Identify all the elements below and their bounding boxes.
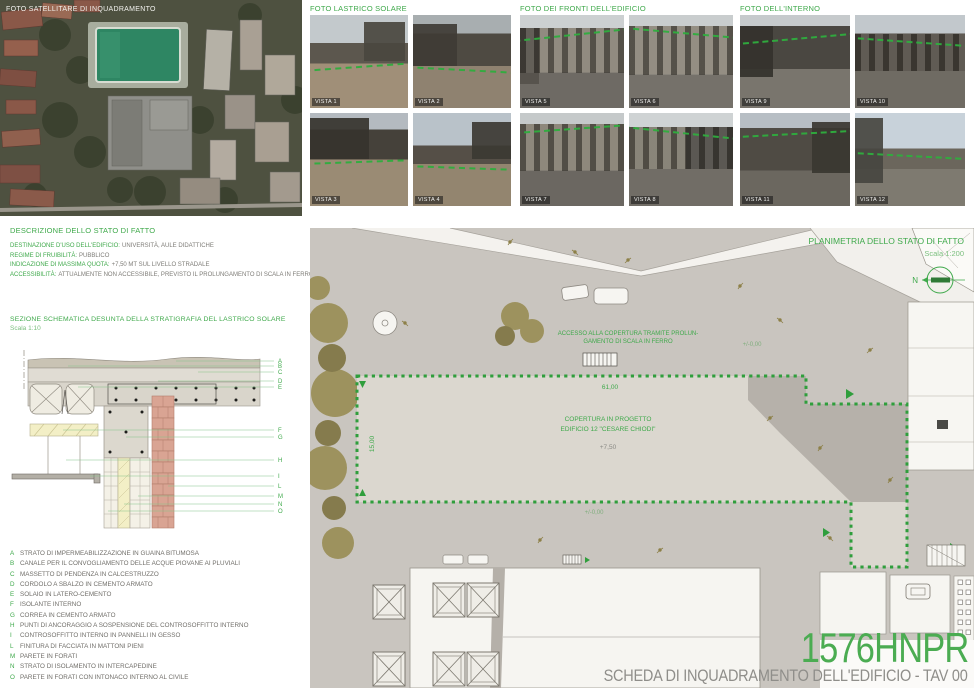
roof-elevation: +7,50 xyxy=(600,444,617,451)
title-block: 1576HNPR SCHEDA DI INQUADRAMENTO DELL'ED… xyxy=(554,628,968,686)
row-value: PUBBLICO xyxy=(79,253,109,259)
svg-text:C: C xyxy=(278,370,283,376)
photo-vista-label: VISTA 12 xyxy=(857,196,888,204)
photo-vista-label: VISTA 10 xyxy=(857,98,888,106)
photo-vista-label: VISTA 8 xyxy=(631,196,659,204)
description-rows: DESTINAZIONE D'USO DELL'EDIFICIO:UNIVERS… xyxy=(10,242,302,280)
photo-thumbnail: VISTA 7 xyxy=(520,113,624,206)
photo-group-title: FOTO DELL'INTERNO xyxy=(740,2,966,15)
legend-text: CONTROSOFFITTO INTERNO IN PANNELLI IN GE… xyxy=(20,632,180,639)
legend-item: DCORDOLO A SBALZO IN CEMENTO ARMATO xyxy=(10,580,310,590)
section-scale: Scala 1:10 xyxy=(10,325,302,332)
roof-outline-overlay xyxy=(413,66,511,74)
row-label: INDICAZIONE DI MASSIMA QUOTA: xyxy=(10,262,110,268)
section-letter-labels: AB CD EF GH IL MN O xyxy=(278,359,283,515)
photo-vista-label: VISTA 11 xyxy=(742,196,773,204)
photo-grid: VISTA 1VISTA 2VISTA 3VISTA 4 xyxy=(310,15,512,206)
row-value: +7,50 MT SUL LIVELLO STRADALE xyxy=(112,262,210,268)
plan-title: PLANIMETRIA DELLO STATO DI FATTO xyxy=(808,236,964,246)
roof-label-line2: EDIFICIO 12 "CESARE CHIODI" xyxy=(561,426,657,433)
svg-text:N: N xyxy=(278,502,282,508)
svg-text:I: I xyxy=(278,474,280,480)
legend-letter: E xyxy=(10,590,20,600)
legend-item: OPARETE IN FORATI CON INTONACO INTERNO A… xyxy=(10,673,310,683)
legend-text: CORREA IN CEMENTO ARMATO xyxy=(20,612,116,619)
photo-thumbnail: VISTA 4 xyxy=(413,113,511,206)
legend-text: FINITURA DI FACCIATA IN MATTONI PIENI xyxy=(20,643,144,650)
photo-group-interno: FOTO DELL'INTERNOVISTA 9VISTA 10VISTA 11… xyxy=(740,2,966,206)
hollow-core-blocks xyxy=(30,384,94,414)
site-plan: N PLANIMETRIA DELLO STATO DI FATTO Scala… xyxy=(310,228,974,688)
photo-building-mass xyxy=(413,24,457,66)
svg-text:E: E xyxy=(278,385,282,391)
suspended-ceiling xyxy=(12,474,100,483)
section-header: SEZIONE SCHEMATICA DESUNTA DELLA STRATIG… xyxy=(10,316,302,332)
legend-item: ICONTROSOFFITTO INTERNO IN PANNELLI IN G… xyxy=(10,631,310,641)
photo-vista-label: VISTA 7 xyxy=(522,196,550,204)
north-label: N xyxy=(912,276,918,285)
photo-thumbnail: VISTA 6 xyxy=(629,15,733,108)
legend-letter: H xyxy=(10,621,20,631)
stratigraphy-legend: ASTRATO DI IMPERMEABILIZZAZIONE IN GUAIN… xyxy=(10,549,310,683)
street-level-label: +/-0,00 xyxy=(585,510,605,516)
photo-vista-label: VISTA 6 xyxy=(631,98,659,106)
description-row: ACCESSIBILITÀ:ATTUALMENTE NON ACCESSIBIL… xyxy=(10,271,302,281)
svg-text:H: H xyxy=(278,458,282,464)
legend-text: PUNTI DI ANCORAGGIO A SOSPENSIONE DEL CO… xyxy=(20,622,248,629)
description-title: DESCRIZIONE DELLO STATO DI FATTO xyxy=(10,226,302,235)
skylight xyxy=(467,583,499,617)
inner-wall-layers xyxy=(104,458,150,528)
photo-thumbnail: VISTA 3 xyxy=(310,113,408,206)
legend-item: MPARETE IN FORATI xyxy=(10,652,310,662)
photo-thumbnail: VISTA 5 xyxy=(520,15,624,108)
legend-text: CANALE PER IL CONVOGLIAMENTO DELLE ACQUE… xyxy=(20,560,240,567)
photo-vista-label: VISTA 9 xyxy=(742,98,770,106)
legend-letter: D xyxy=(10,580,20,590)
sheet-subtitle: SCHEDA DI INQUADRAMENTO DELL'EDIFICIO - … xyxy=(604,668,968,685)
skylight xyxy=(467,652,499,686)
stratigraphy-section-drawing: AB CD EF GH IL MN O xyxy=(8,350,300,550)
photo-vista-label: VISTA 5 xyxy=(522,98,550,106)
legend-item: ESOLAIO IN LATERO-CEMENTO xyxy=(10,590,310,600)
waterproofing-layer xyxy=(28,357,260,368)
legend-letter: A xyxy=(10,549,20,559)
svg-text:L: L xyxy=(278,484,282,490)
photo-building-mass xyxy=(310,118,369,160)
photo-vista-label: VISTA 4 xyxy=(415,196,443,204)
photo-thumbnail: VISTA 10 xyxy=(855,15,965,108)
slab-band xyxy=(28,382,260,406)
photo-thumbnail: VISTA 11 xyxy=(740,113,850,206)
legend-text: PARETE IN FORATI xyxy=(20,653,77,660)
svg-text:G: G xyxy=(278,435,283,441)
street-level-label: +/-0,00 xyxy=(743,342,763,348)
photo-group-lastrico: FOTO LASTRICO SOLAREVISTA 1VISTA 2VISTA … xyxy=(310,2,512,206)
photo-thumbnail: VISTA 8 xyxy=(629,113,733,206)
sheet-code: 1576HNPR xyxy=(800,628,968,668)
legend-letter: B xyxy=(10,559,20,569)
photo-grid: VISTA 5VISTA 6VISTA 7VISTA 8 xyxy=(520,15,734,206)
photo-vista-label: VISTA 3 xyxy=(312,196,340,204)
photo-grid: VISTA 9VISTA 10VISTA 11VISTA 12 xyxy=(740,15,966,206)
legend-letter: L xyxy=(10,642,20,652)
photo-group-title: FOTO DEI FRONTI DELL'EDIFICIO xyxy=(520,2,734,15)
legend-text: STRATO DI ISOLAMENTO IN INTERCAPEDINE xyxy=(20,663,157,670)
screed-layer xyxy=(28,368,260,382)
description-row: DESTINAZIONE D'USO DELL'EDIFICIO:UNIVERS… xyxy=(10,242,302,252)
skylight xyxy=(373,585,405,619)
legend-item: NSTRATO DI ISOLAMENTO IN INTERCAPEDINE xyxy=(10,662,310,672)
row-value: UNIVERSITÀ, AULE DIDATTICHE xyxy=(122,243,214,249)
photo-vista-label: VISTA 1 xyxy=(312,98,340,106)
stair-plan xyxy=(927,545,965,566)
legend-letter: G xyxy=(10,611,20,621)
swimming-pool xyxy=(88,22,188,88)
section-title: SEZIONE SCHEMATICA DESUNTA DELLA STRATIG… xyxy=(10,316,302,323)
legend-text: STRATO DI IMPERMEABILIZZAZIONE IN GUAINA… xyxy=(20,550,199,557)
svg-text:O: O xyxy=(278,509,283,515)
legend-item: ASTRATO DI IMPERMEABILIZZAZIONE IN GUAIN… xyxy=(10,549,310,559)
legend-text: CORDOLO A SBALZO IN CEMENTO ARMATO xyxy=(20,581,153,588)
legend-letter: C xyxy=(10,570,20,580)
legend-item: GCORREA IN CEMENTO ARMATO xyxy=(10,611,310,621)
fountain xyxy=(373,311,397,335)
row-value: ATTUALMENTE NON ACCESSIBILE, PREVISTO IL… xyxy=(58,272,348,278)
row-label: DESTINAZIONE D'USO DELL'EDIFICIO: xyxy=(10,243,120,249)
skylight xyxy=(433,652,465,686)
roof-outline-overlay xyxy=(310,62,408,72)
svg-text:F: F xyxy=(278,428,282,434)
legend-letter: M xyxy=(10,652,20,662)
description-row: INDICAZIONE DI MASSIMA QUOTA:+7,50 MT SU… xyxy=(10,261,302,271)
legend-item: BCANALE PER IL CONVOGLIAMENTO DELLE ACQU… xyxy=(10,559,310,569)
photo-thumbnail: VISTA 1 xyxy=(310,15,408,108)
legend-item: CMASSETTO DI PENDENZA IN CALCESTRUZZO xyxy=(10,570,310,580)
roof-label-line1: COPERTURA IN PROGETTO xyxy=(565,416,652,423)
photo-building-mass xyxy=(855,118,883,183)
legend-letter: N xyxy=(10,662,20,672)
adjacent-building-right xyxy=(908,302,974,470)
dimension-width: 61,00 xyxy=(602,384,619,391)
legend-item: LFINITURA DI FACCIATA IN MATTONI PIENI xyxy=(10,642,310,652)
photo-building-mass xyxy=(472,122,511,159)
row-label: REGIME DI FRUIBILITÀ: xyxy=(10,253,77,259)
access-note-line1: ACCESSO ALLA COPERTURA TRAMITE PROLUN- xyxy=(558,331,698,337)
dimension-height: 15,00 xyxy=(369,435,376,452)
plan-scale: Scala 1:200 xyxy=(924,249,964,258)
legend-text: MASSETTO DI PENDENZA IN CALCESTRUZZO xyxy=(20,571,159,578)
presentation-board: FOTO SATELLITARE DI INQUADRAMENTO FOTO L… xyxy=(0,0,974,688)
photo-building-mass xyxy=(364,22,405,61)
access-note-line2: GAMENTO DI SCALA IN FERRO xyxy=(583,339,673,345)
state-description: DESCRIZIONE DELLO STATO DI FATTO DESTINA… xyxy=(10,226,302,280)
roof-outline-overlay xyxy=(310,159,408,165)
row-label: ACCESSIBILITÀ: xyxy=(10,272,56,278)
satellite-photo: FOTO SATELLITARE DI INQUADRAMENTO xyxy=(0,0,302,216)
roof-ladder xyxy=(583,353,617,366)
photo-building-mass xyxy=(740,26,773,77)
legend-text: PARETE IN FORATI CON INTONACO INTERNO AL… xyxy=(20,674,188,681)
brick-facing xyxy=(152,396,174,528)
legend-item: HPUNTI DI ANCORAGGIO A SOSPENSIONE DEL C… xyxy=(10,621,310,631)
photo-thumbnail: VISTA 2 xyxy=(413,15,511,108)
photo-thumbnail: VISTA 9 xyxy=(740,15,850,108)
photo-group-fronti: FOTO DEI FRONTI DELL'EDIFICIOVISTA 5VIST… xyxy=(520,2,734,206)
legend-item: FISOLANTE INTERNO xyxy=(10,600,310,610)
photo-vista-label: VISTA 2 xyxy=(415,98,443,106)
legend-text: ISOLANTE INTERNO xyxy=(20,601,81,608)
legend-text: SOLAIO IN LATERO-CEMENTO xyxy=(20,591,111,598)
satellite-graphic: FOTO SATELLITARE DI INQUADRAMENTO xyxy=(0,0,302,216)
ceiling-hangers xyxy=(48,436,80,474)
legend-letter: O xyxy=(10,673,20,683)
roof-outline-overlay xyxy=(413,165,511,171)
description-row: REGIME DI FRUIBILITÀ:PUBBLICO xyxy=(10,252,302,262)
skylight xyxy=(373,652,405,686)
photo-thumbnail: VISTA 12 xyxy=(855,113,965,206)
legend-letter: F xyxy=(10,600,20,610)
svg-text:M: M xyxy=(278,494,283,500)
photo-group-title: FOTO LASTRICO SOLARE xyxy=(310,2,512,15)
furniture-item xyxy=(906,584,930,599)
entrance-marker xyxy=(937,420,948,429)
skylight xyxy=(433,583,465,617)
satellite-label: FOTO SATELLITARE DI INQUADRAMENTO xyxy=(6,6,156,13)
legend-letter: I xyxy=(10,631,20,641)
